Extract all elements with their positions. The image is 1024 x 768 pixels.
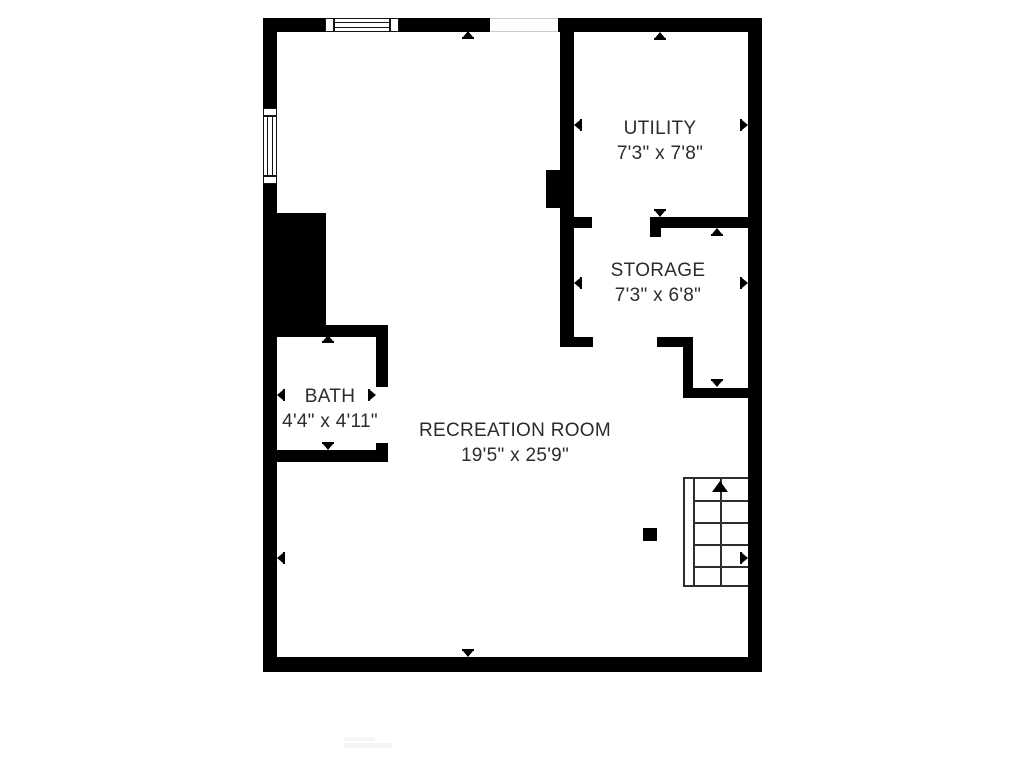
room-name: BATH — [282, 384, 378, 409]
column-post — [643, 528, 657, 541]
stair-tread-line — [693, 544, 748, 546]
tick-marker-rec-right-icon — [740, 552, 748, 564]
wall-divider-stub — [560, 217, 592, 228]
chimney-block — [546, 170, 560, 208]
tick-marker-utility-bottom-icon — [654, 209, 666, 217]
tick-marker-storage-top-icon — [711, 228, 723, 236]
tick-marker-bath-top-icon — [322, 335, 334, 343]
wall-exterior-bottom — [263, 657, 762, 672]
room-name: STORAGE — [611, 258, 706, 283]
floor-plan-canvas: UTILITY 7'3" x 7'8" STORAGE 7'3" x 6'8" … — [0, 0, 1024, 768]
stairs-up-arrow-icon — [712, 481, 728, 492]
bath-corner-block — [263, 213, 326, 325]
stair-stringer-line — [693, 479, 695, 585]
window-jamb — [264, 175, 276, 177]
room-label-storage: STORAGE 7'3" x 6'8" — [611, 258, 706, 308]
window-left — [263, 108, 277, 184]
room-label-bath: BATH 4'4" x 4'11" — [282, 384, 378, 434]
room-label-recreation: RECREATION ROOM 19'5" x 25'9" — [419, 418, 611, 468]
tick-marker-storage-right-icon — [740, 277, 748, 289]
room-name: RECREATION ROOM — [419, 418, 611, 443]
wall-exterior-top-right — [558, 18, 762, 32]
tick-marker-utility-left-icon — [574, 119, 582, 131]
stair-tread-line — [693, 522, 748, 524]
tick-marker-rec-bottom-icon — [462, 649, 474, 657]
wall-exterior-right — [748, 18, 762, 672]
tick-marker-storage-bottom-icon — [711, 379, 723, 387]
room-dimensions: 19'5" x 25'9" — [419, 443, 611, 468]
window-top — [325, 18, 399, 32]
room-dimensions: 4'4" x 4'11" — [282, 409, 378, 434]
wall-bath-right-upper — [376, 325, 388, 387]
tick-marker-rec-top-icon — [462, 31, 474, 39]
wall-storage-alcove-bottom — [683, 388, 748, 398]
staircase — [683, 477, 748, 587]
window-jamb — [264, 115, 276, 117]
tick-marker-utility-right-icon — [740, 119, 748, 131]
floor-plan: UTILITY 7'3" x 7'8" STORAGE 7'3" x 6'8" … — [0, 0, 1024, 768]
room-label-utility: UTILITY 7'3" x 7'8" — [617, 116, 703, 166]
stair-tread-line — [693, 566, 748, 568]
wall-utility-left — [560, 32, 574, 228]
room-name: UTILITY — [617, 116, 703, 141]
wall-bath-bottom — [263, 450, 388, 462]
watermark — [344, 737, 375, 741]
wall-storage-bottom-stub — [560, 337, 593, 347]
tick-marker-utility-top-icon — [654, 32, 666, 40]
stair-tread-line — [693, 500, 748, 502]
tick-marker-bath-bottom-icon — [322, 442, 334, 450]
watermark — [344, 743, 392, 748]
window-jamb — [333, 19, 335, 31]
wall-storage-left — [560, 228, 574, 347]
door-jamb-storage — [650, 228, 661, 237]
wall-utility-storage-divider — [650, 217, 748, 228]
wall-opening-top — [490, 18, 558, 32]
room-dimensions: 7'3" x 6'8" — [611, 283, 706, 308]
tick-marker-storage-left-icon — [574, 277, 582, 289]
stair-center-line — [720, 479, 722, 585]
window-jamb — [389, 19, 391, 31]
tick-marker-rec-left-icon — [277, 552, 285, 564]
room-dimensions: 7'3" x 7'8" — [617, 141, 703, 166]
